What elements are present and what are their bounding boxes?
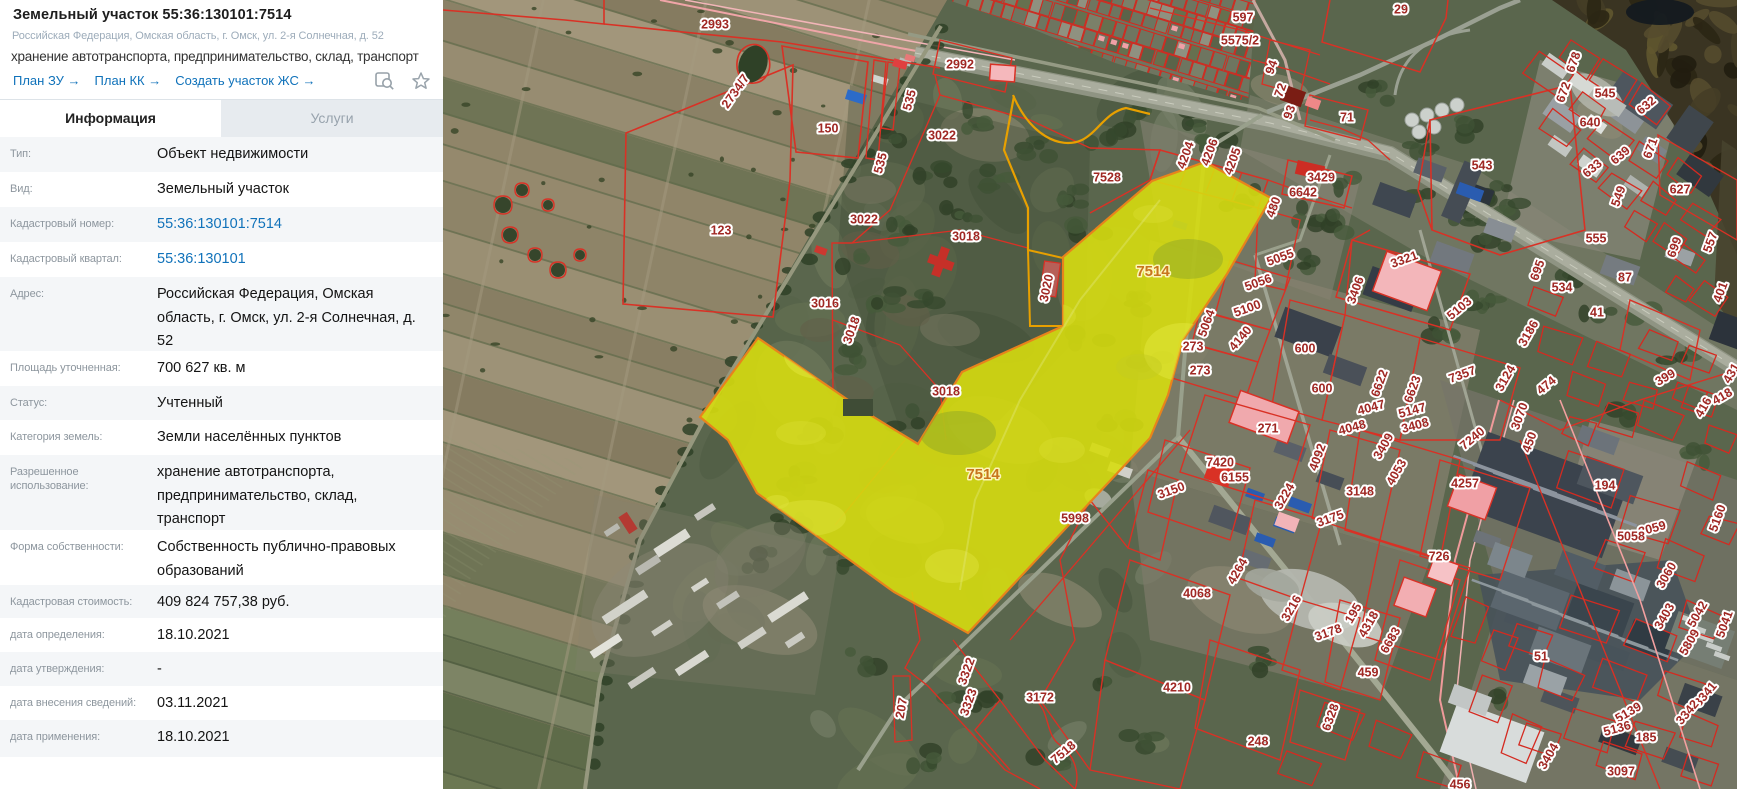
svg-text:597: 597 [1233,11,1254,25]
svg-text:2992: 2992 [946,58,974,72]
svg-text:273: 273 [1190,364,1211,378]
svg-text:185: 185 [1636,731,1657,745]
svg-text:7528: 7528 [1093,171,1121,185]
svg-text:2993: 2993 [701,18,729,32]
svg-text:5998: 5998 [1061,512,1089,526]
svg-text:3016: 3016 [811,297,839,311]
svg-text:543: 543 [1472,159,1493,173]
svg-text:627: 627 [1670,183,1691,197]
svg-text:29: 29 [1394,3,1408,17]
svg-text:3018: 3018 [932,385,960,399]
svg-text:3148: 3148 [1346,485,1374,499]
svg-text:4257: 4257 [1451,477,1479,491]
svg-text:6642: 6642 [1289,186,1317,200]
svg-text:3172: 3172 [1026,691,1054,705]
svg-text:726: 726 [1429,550,1450,564]
svg-text:51: 51 [1534,650,1548,664]
svg-text:71: 71 [1340,111,1354,125]
svg-text:6155: 6155 [1221,471,1249,485]
svg-text:7514: 7514 [1136,263,1170,280]
svg-text:3022: 3022 [850,213,878,227]
svg-text:194: 194 [1595,479,1616,493]
svg-text:273: 273 [1183,340,1204,354]
svg-text:545: 545 [1595,87,1616,101]
svg-text:600: 600 [1295,342,1316,356]
svg-text:150: 150 [818,122,839,136]
svg-text:41: 41 [1590,306,1604,320]
svg-text:123: 123 [711,224,732,238]
svg-text:248: 248 [1248,735,1269,749]
svg-text:7420: 7420 [1206,456,1234,470]
svg-text:87: 87 [1618,271,1632,285]
svg-text:555: 555 [1586,232,1607,246]
svg-text:600: 600 [1312,382,1333,396]
svg-text:640: 640 [1580,116,1601,130]
svg-text:5058: 5058 [1617,530,1645,544]
svg-text:3429: 3429 [1307,171,1335,185]
svg-text:456: 456 [1450,778,1471,789]
svg-text:7514: 7514 [966,466,1000,483]
svg-text:271: 271 [1258,422,1279,436]
svg-text:4210: 4210 [1163,681,1191,695]
svg-text:3022: 3022 [928,129,956,143]
svg-text:5575/2: 5575/2 [1221,34,1259,48]
svg-text:3097: 3097 [1607,765,1635,779]
svg-text:459: 459 [1358,666,1379,680]
svg-text:3018: 3018 [952,230,980,244]
svg-text:534: 534 [1552,281,1573,295]
svg-text:4068: 4068 [1183,587,1211,601]
